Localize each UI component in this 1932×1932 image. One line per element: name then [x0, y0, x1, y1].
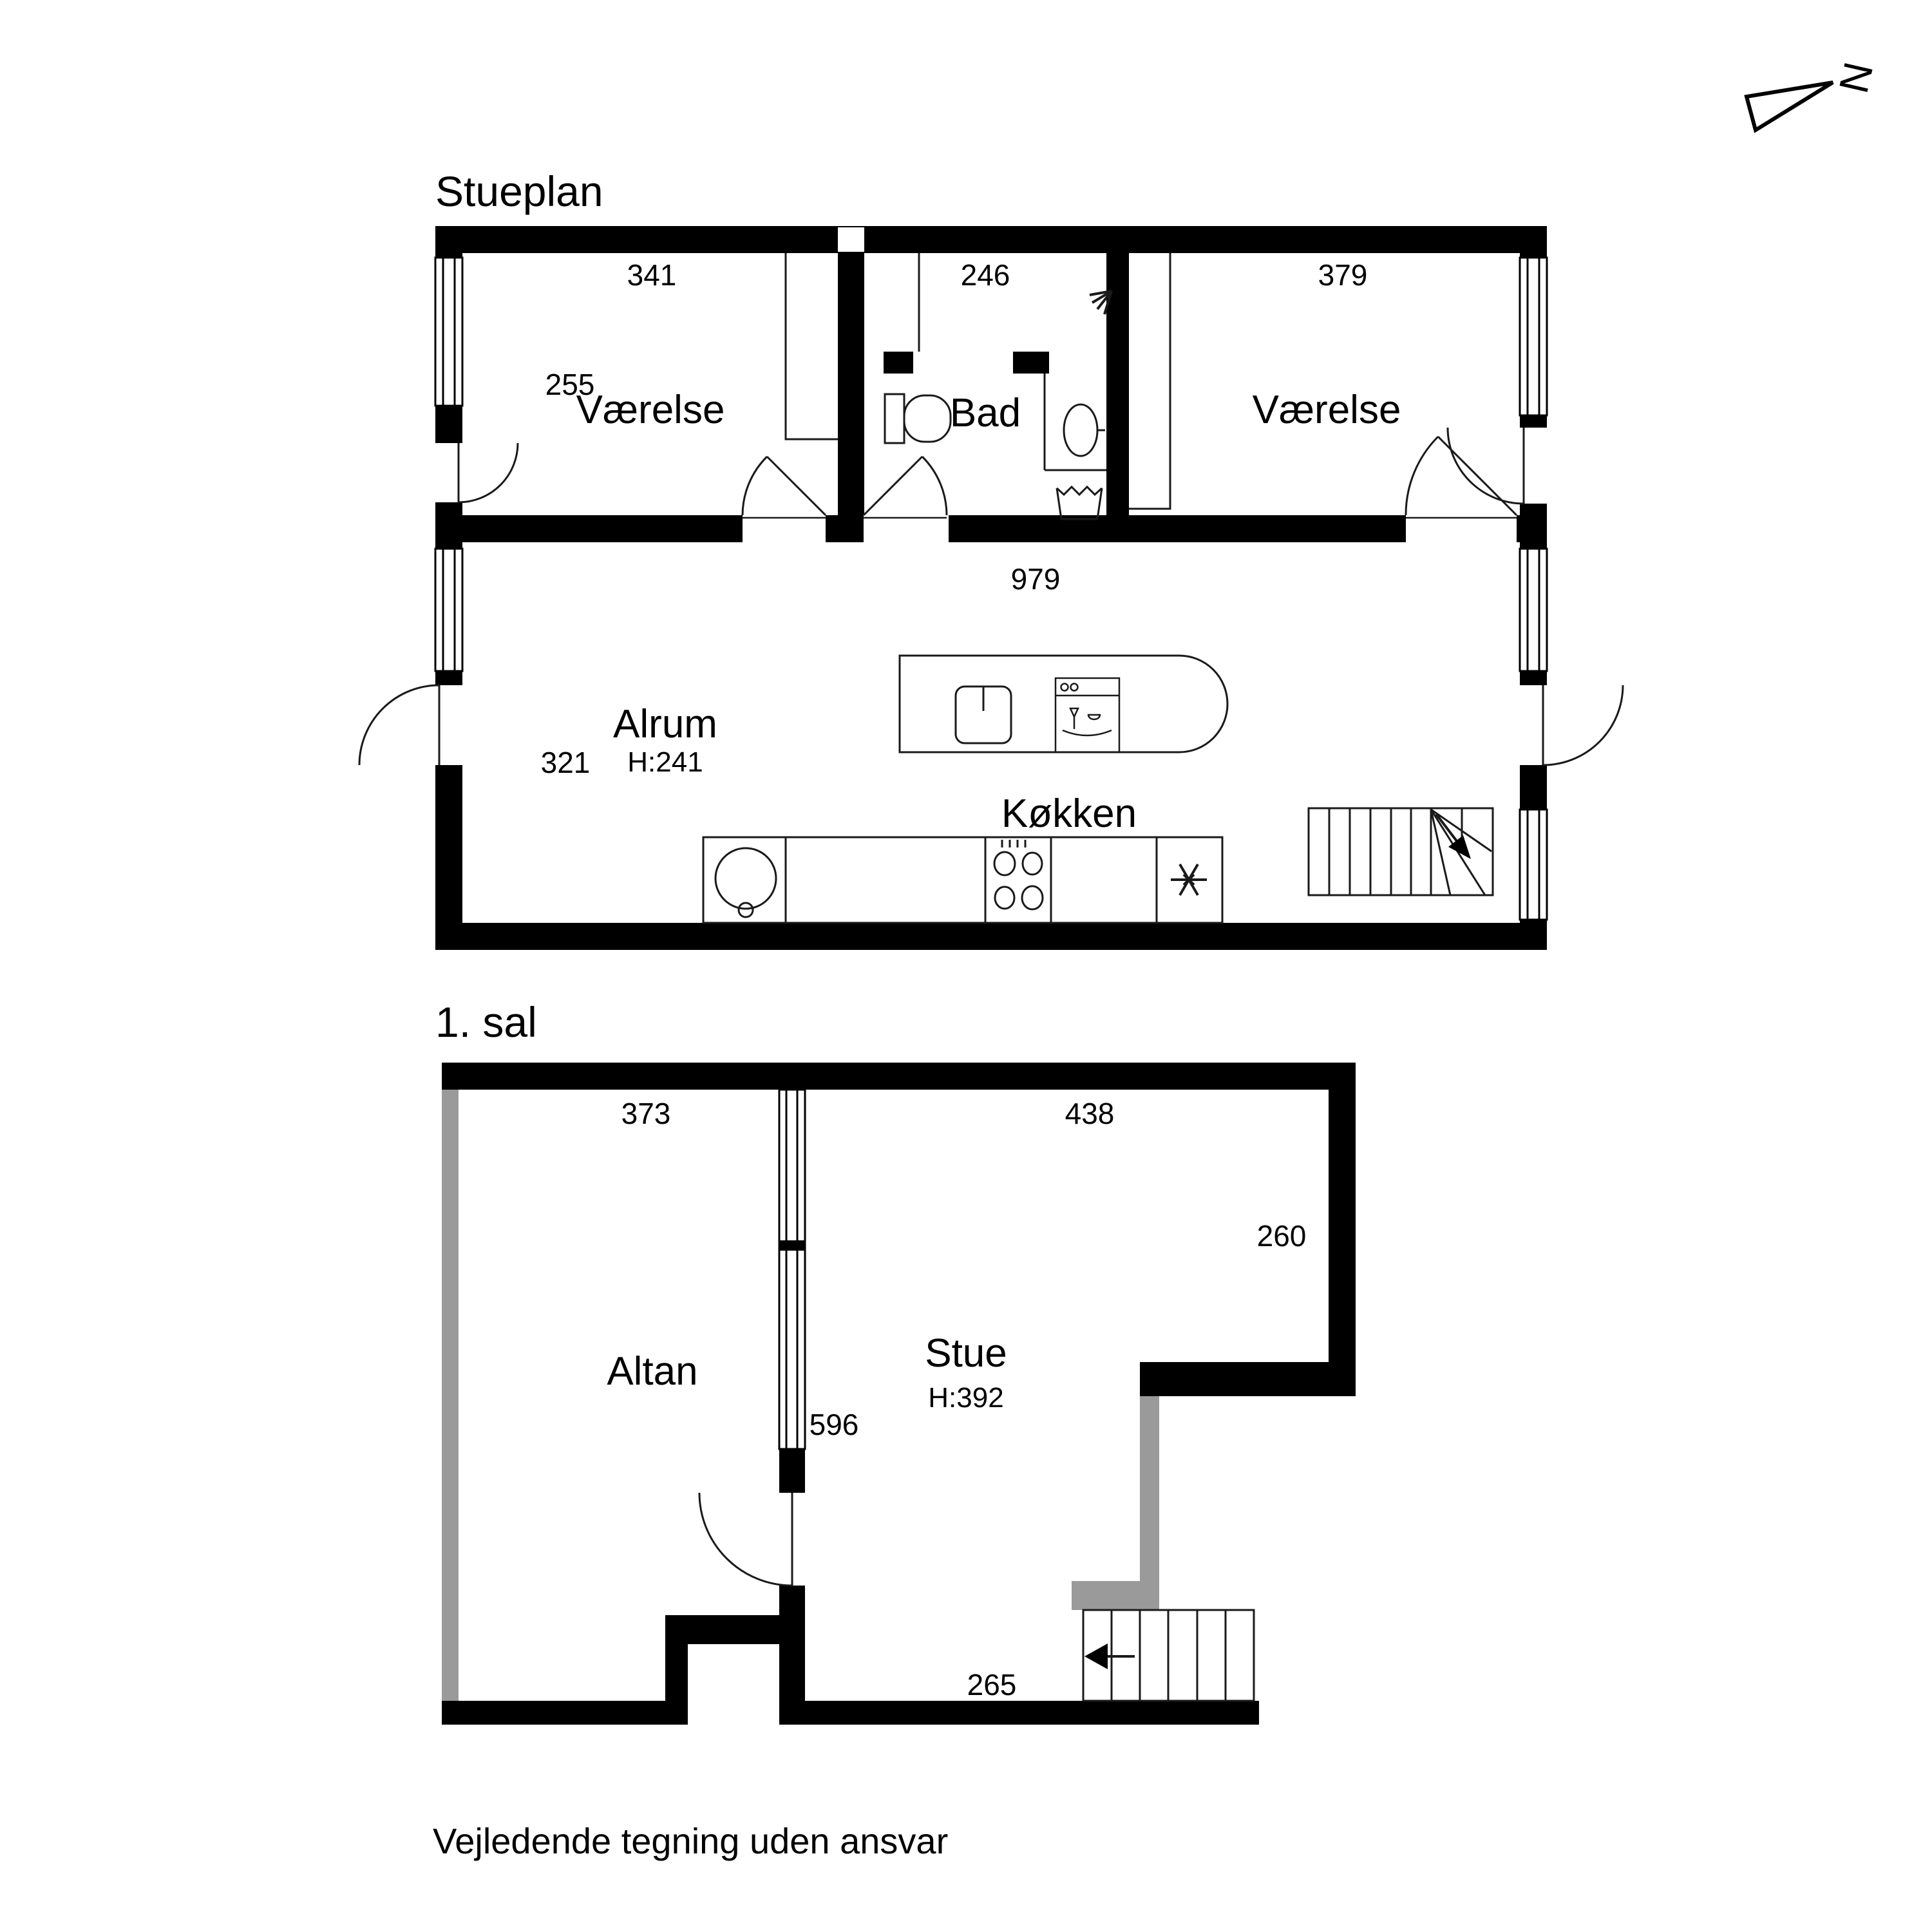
stueplan-floor: Stueplan: [359, 167, 1623, 950]
door-left-alrum-exterior: [359, 685, 439, 765]
dim-vaerelse-left-width: 341: [627, 258, 677, 292]
door-left-vaerelse-exterior: [459, 443, 518, 502]
window-right-vaerelse: [1520, 258, 1547, 415]
first-floor-title: 1. sal: [435, 998, 537, 1046]
label-stue: Stue: [925, 1331, 1007, 1376]
label-vaerelse-right: Værelse: [1253, 388, 1401, 432]
dim-stue-bottom: 265: [967, 1668, 1017, 1701]
dim-stue-right: 260: [1257, 1219, 1307, 1253]
label-koekken: Køkken: [1001, 791, 1137, 836]
railing-left: [442, 1090, 459, 1701]
compass-label: N: [1830, 58, 1882, 97]
dim-stue-width: 438: [1065, 1097, 1115, 1130]
dim-bad-width: 246: [961, 258, 1010, 292]
door-altan: [699, 1493, 792, 1586]
dim-partition: 596: [810, 1408, 859, 1441]
laundry-tub-icon: [1057, 487, 1102, 519]
door-vaerelse-right-entry: [1406, 437, 1517, 518]
stairs-stueplan: [1309, 808, 1493, 895]
stairs-first-floor: [1083, 1610, 1254, 1701]
dim-alrum-window: 321: [541, 746, 591, 779]
floorplan-page: N Stueplan: [0, 0, 1932, 1932]
first-floor: 1. sal: [435, 998, 1356, 1725]
floorplan-drawing: N Stueplan: [0, 0, 1932, 1932]
toilet-icon: [885, 394, 951, 443]
kitchen-counter: [703, 837, 1222, 923]
door-vaerelse-right-wall: [1448, 428, 1524, 504]
window-left-vaerelse: [435, 258, 462, 406]
window-left-alrum: [435, 549, 462, 671]
window-right-stairs: [1520, 810, 1547, 920]
disclaimer-text: Vejledende tegning uden ansvar: [433, 1821, 948, 1861]
label-bad: Bad: [950, 391, 1021, 435]
dim-vaerelse-right-width: 379: [1318, 258, 1368, 292]
label-vaerelse-left: Værelse: [576, 388, 725, 432]
door-vaerelse-left-entry: [743, 457, 826, 518]
label-alrum: Alrum: [613, 702, 717, 746]
railing-stair-vertical: [1140, 1396, 1159, 1583]
north-arrow-icon: N: [1747, 58, 1882, 130]
label-alrum-ceiling: H:241: [627, 746, 703, 778]
label-stue-ceiling: H:392: [928, 1382, 1003, 1414]
dim-altan-width: 373: [621, 1097, 671, 1130]
bathroom-sink-icon: [1064, 404, 1105, 456]
kitchen-island: [900, 656, 1227, 752]
stueplan-title: Stueplan: [435, 167, 603, 215]
label-altan: Altan: [607, 1349, 697, 1394]
window-altan-stue: [779, 1090, 805, 1449]
door-bad-entry: [864, 457, 947, 518]
dim-total-width: 979: [1011, 562, 1061, 596]
window-right-alrum: [1520, 549, 1547, 671]
door-alrum-right-exterior: [1543, 685, 1623, 765]
railing-stair-foot: [1072, 1581, 1159, 1610]
